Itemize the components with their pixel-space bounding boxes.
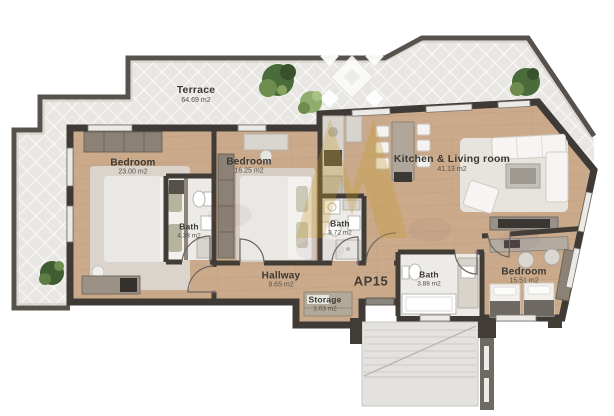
room-name: Bath (328, 220, 352, 230)
room-label-bedroom-right: Bedroom 15.51 m2 (501, 266, 546, 285)
room-area: 1.03 m2 (308, 305, 341, 312)
room-name: Bath (177, 223, 201, 233)
single-bed (524, 283, 554, 316)
room-name: Terrace (177, 85, 216, 97)
entry-door (366, 298, 394, 305)
room-name: Bedroom (110, 157, 155, 168)
room-area: 41.13 m2 (394, 166, 510, 174)
unit-label: AP15 (354, 274, 389, 289)
stair-wall-corner (478, 320, 496, 338)
floorplan-drawing (0, 0, 614, 416)
room-area: 15.51 m2 (501, 278, 546, 286)
wall-stub (548, 318, 562, 328)
room-label-hallway: Hallway 9.65 m2 (262, 270, 301, 289)
stair-wall-left (350, 318, 362, 344)
tv-bench (490, 217, 558, 230)
staircase (350, 318, 562, 410)
room-label-kitchen-living: Kitchen & Living room 41.13 m2 (394, 154, 510, 174)
room-label-storage: Storage 1.03 m2 (308, 296, 341, 313)
room-name: Storage (308, 296, 341, 306)
room-area: 23.00 m2 (110, 169, 155, 177)
floorplan-page: Terrace 64.69 m2 Bedroom 23.00 m2 Bedroo… (0, 0, 614, 416)
room-area: 3.72 m2 (328, 229, 352, 236)
room-label-bath-right: Bath 3.88 m2 (417, 271, 441, 288)
room-label-bath-middle: Bath 3.72 m2 (328, 220, 352, 237)
room-area: 3.88 m2 (417, 280, 441, 287)
room-label-bath-left: Bath 4.38 m2 (177, 223, 201, 240)
dresser-tv (82, 276, 140, 294)
room-label-terrace: Terrace 64.69 m2 (177, 85, 216, 105)
room-area: 4.38 m2 (177, 232, 201, 239)
room-area: 9.65 m2 (262, 282, 301, 290)
room-area: 16.25 m2 (226, 168, 271, 176)
room-label-bedroom-middle: Bedroom 16.25 m2 (226, 156, 271, 175)
room-name: Kitchen & Living room (394, 154, 510, 166)
room-name: Hallway (262, 270, 301, 281)
room-name: Bath (417, 271, 441, 281)
room-name: Bedroom (226, 156, 271, 167)
stool (544, 249, 560, 265)
room-name: Bedroom (501, 266, 546, 277)
room-label-bedroom-left: Bedroom 23.00 m2 (110, 157, 155, 176)
room-area: 64.69 m2 (177, 97, 216, 105)
wardrobe-bedroom-left (84, 132, 162, 152)
single-bed (490, 284, 520, 317)
